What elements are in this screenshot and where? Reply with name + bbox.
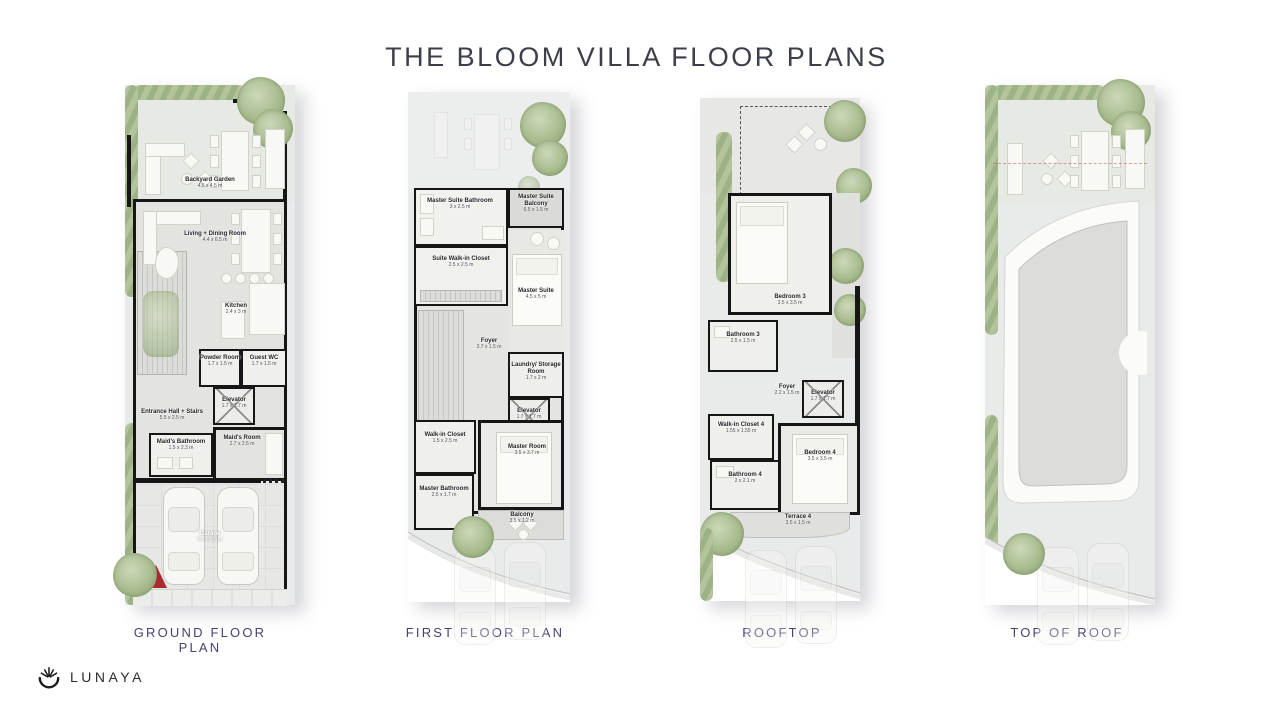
bed [496, 432, 552, 504]
chair [210, 135, 219, 148]
rooftop-plan: Bedroom 3 3.5 x 3.5 m Bathroom 3 2.5 x 1… [700, 98, 860, 601]
driveway [133, 589, 287, 606]
sofa [434, 112, 448, 158]
closet-hangers [420, 290, 502, 302]
tree [834, 294, 866, 326]
room-label-master-room: Master Room 3.5 x 3.7 m [500, 444, 554, 457]
room-label-suite-walk-in-closet: Suite Walk-in Closet 2.5 x 2.5 m [422, 256, 500, 269]
chair [231, 213, 240, 225]
car [504, 542, 546, 640]
bar-stool [235, 273, 246, 284]
room-label-laundry-storage: Laundry/ Storage Room 1.7 x 2 m [508, 362, 564, 382]
room-label-backyard-garden: Backyard Garden 4.5 x 4.5 m [153, 177, 267, 190]
lounge-chair [547, 237, 560, 250]
lounge-chair [530, 232, 544, 246]
room-label-balcony: Balcony 3.5 x 1.2 m [494, 512, 550, 525]
chair [252, 135, 261, 148]
garage-wall [284, 479, 287, 589]
wall [855, 286, 860, 431]
walk-in-closet-4 [708, 414, 774, 460]
bed [736, 202, 788, 284]
room-label-bathroom-4: Bathroom 4 2 x 2.1 m [710, 472, 780, 485]
room-label-bedroom-3: Bedroom 3 3.5 x 3.5 m [760, 294, 820, 307]
room-label-maids-room: Maid's Room 2.7 x 2.5 m [217, 435, 267, 448]
bbq-counter [1125, 129, 1145, 189]
car [795, 546, 837, 644]
outdoor-sofa [145, 143, 185, 157]
tree [113, 553, 157, 597]
room-label-master-suite-balcony: Master Suite Balcony 6.5 x 1.5 m [508, 194, 564, 214]
page-title: THE BLOOM VILLA FLOOR PLANS [0, 42, 1273, 73]
chair [273, 233, 282, 245]
car [1087, 543, 1129, 641]
first-floor-plan: Master Suite Bathroom 3 x 2.5 m Master S… [408, 92, 570, 602]
brand-name: LUNAYA [70, 669, 145, 685]
chair [464, 118, 472, 130]
chair [1112, 155, 1121, 168]
chair [252, 155, 261, 168]
toilet [179, 457, 193, 469]
chair [1070, 135, 1079, 148]
room-label-bedroom-4: Bedroom 4 3.5 x 3.5 m [792, 450, 848, 463]
room-label-elevator: Elevator 1.7 x 1.7 m [508, 408, 550, 421]
room-label-living-dining: Living + Dining Room 4.4 x 6.5 m [175, 231, 255, 244]
room-label-elevator: Elevator 1.7 x 1.7 m [213, 397, 255, 410]
dashed-boundary [740, 106, 832, 108]
tree [828, 248, 864, 284]
bed [792, 434, 848, 504]
side-table [814, 138, 827, 151]
roof-slab [993, 183, 1147, 523]
tree [824, 100, 866, 142]
plan-caption-ground-floor: GROUND FLOOR PLAN [115, 625, 285, 655]
room-label-foyer: Foyer 3.7 x 1.5 m [464, 338, 514, 351]
room-label-entrance-hall: Entrance Hall + Stairs 5.5 x 2.5 m [135, 409, 209, 422]
room-label-terrace-4: Terrace 4 3.5 x 1.5 m [770, 514, 826, 527]
tree [532, 140, 568, 176]
room-label-maids-bathroom: Maid's Bathroom 1.5 x 2.3 m [149, 439, 213, 452]
lunaya-lotus-icon [36, 664, 62, 690]
chair [210, 155, 219, 168]
chair [1070, 155, 1079, 168]
tree [452, 516, 494, 558]
tree [1003, 533, 1045, 575]
chair [504, 138, 512, 150]
room-label-elevator: Elevator 1.7 x 1.7 m [802, 390, 844, 403]
hedge [993, 85, 1105, 100]
chair [231, 253, 240, 265]
stairs [418, 310, 464, 422]
room-label-bathroom-3: Bathroom 3 2.5 x 1.5 m [708, 332, 778, 345]
chair [1112, 135, 1121, 148]
chair [273, 253, 282, 265]
room-label-walk-in-closet-4: Walk-in Closet 4 1.55 x 1.55 m [708, 422, 774, 435]
boundary-wall [127, 135, 131, 207]
shower [420, 218, 434, 236]
room-label-garage: Garage 5.5 x 5.5 m [180, 531, 240, 544]
sink [157, 457, 173, 469]
room-label-kitchen: Kitchen 2.4 x 3 m [207, 303, 265, 316]
ground-floor-plan: Backyard Garden 4.5 x 4.5 m Living + Din… [125, 85, 295, 605]
room-label-master-bathroom: Master Bathroom 2.5 x 1.7 m [414, 486, 474, 499]
room-label-master-suite-bathroom: Master Suite Bathroom 3 x 2.5 m [420, 198, 500, 211]
wall [213, 427, 216, 479]
bbq-counter [265, 129, 285, 189]
red-reference-line [993, 163, 1147, 164]
walk-in-closet [414, 420, 476, 474]
room-label-walk-in-closet: Walk-in Closet 1.5 x 2.5 m [414, 432, 476, 445]
table [474, 114, 500, 170]
brand-logo: LUNAYA [36, 664, 145, 690]
room-label-guest-wc: Guest WC 1.7 x 1.5 m [241, 355, 287, 368]
top-of-roof-plan [985, 85, 1155, 605]
vanity [482, 226, 504, 240]
chair [464, 138, 472, 150]
room-label-powder-room: Powder Room 1.7 x 1.5 m [199, 355, 241, 368]
wardrobe [265, 433, 283, 475]
chair [504, 118, 512, 130]
chair [273, 213, 282, 225]
room-label-master-suite: Master Suite 4.5 x 5 m [508, 288, 564, 301]
hedge [133, 85, 245, 100]
outdoor-dining-table [1081, 131, 1109, 191]
bar-stool [221, 273, 232, 284]
wall [213, 427, 287, 430]
car [745, 550, 787, 648]
hedge [700, 528, 713, 601]
car [454, 547, 496, 645]
planter [143, 291, 179, 357]
